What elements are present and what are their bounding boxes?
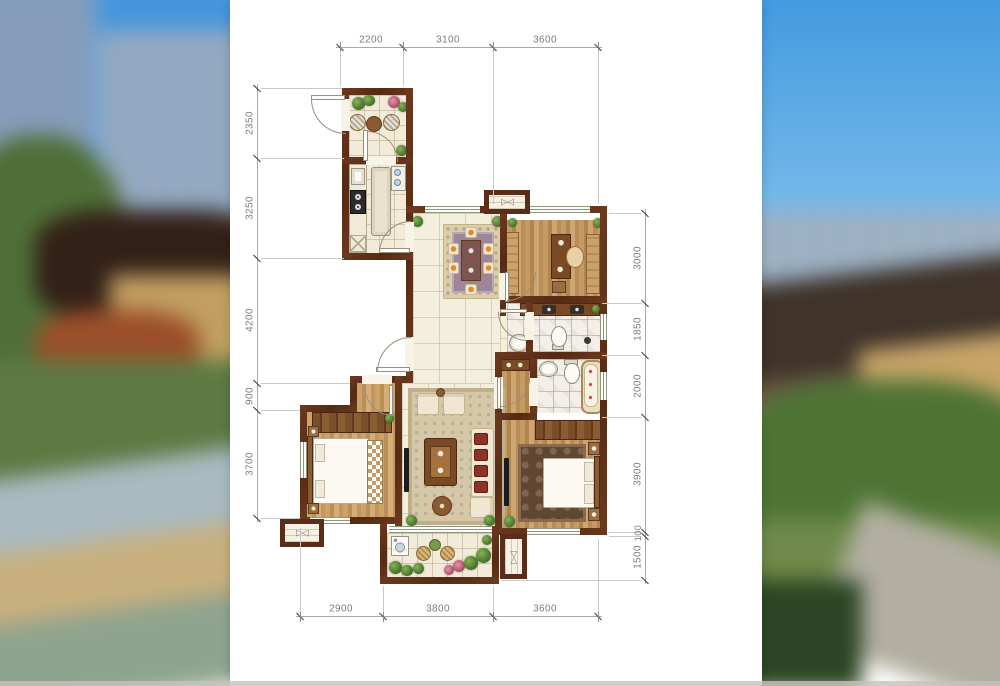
extension-line xyxy=(300,528,301,612)
master-tv xyxy=(504,458,509,506)
dim-label-left-1: 2350 xyxy=(245,111,256,135)
door-opening xyxy=(362,375,392,384)
nightstand xyxy=(308,503,319,514)
plant-pot xyxy=(508,218,517,227)
extension-line xyxy=(403,51,404,86)
toilet xyxy=(564,363,580,384)
dim-label-right-2: 1850 xyxy=(633,317,644,341)
window xyxy=(527,528,580,535)
sofa-cushion xyxy=(474,433,488,445)
extension-line xyxy=(261,88,342,89)
coffee-table-tray xyxy=(430,446,451,478)
nightstand xyxy=(588,508,600,521)
dim-label-bottom-3: 3600 xyxy=(533,604,557,615)
dining-chair xyxy=(448,243,459,255)
dining-chair xyxy=(465,227,477,238)
extension-line xyxy=(340,51,341,86)
kitchen-sink-basin xyxy=(394,169,401,176)
balcony-chair xyxy=(349,114,366,131)
shower-head xyxy=(584,337,591,344)
living-tv xyxy=(404,448,409,492)
dim-label-left-4: 900 xyxy=(245,387,256,405)
master-wardrobe xyxy=(535,420,602,440)
wall xyxy=(380,577,499,584)
window xyxy=(530,206,590,213)
balcony-table xyxy=(429,539,441,551)
bath1-vanity-sink xyxy=(542,305,556,314)
dim-label-left-3: 4200 xyxy=(245,308,256,332)
dining-chair xyxy=(465,284,477,295)
wall xyxy=(495,413,537,420)
dim-label-left-2: 3250 xyxy=(245,196,256,220)
ac-platform-north: ▷◁ xyxy=(484,190,530,214)
extension-line xyxy=(602,355,641,356)
extension-line xyxy=(609,213,641,214)
pillow xyxy=(584,484,594,504)
floor-plan-page: ▷◁ ▷◁ ▷◁ xyxy=(0,0,1000,686)
wall xyxy=(495,420,502,535)
wall xyxy=(395,376,402,526)
balcony-table xyxy=(366,116,382,132)
dim-label-bottom-2: 3800 xyxy=(426,604,450,615)
ac-platform-glyph: ▷◁ xyxy=(508,551,519,563)
extension-line xyxy=(261,158,344,159)
plant-pot xyxy=(482,535,492,545)
dim-label-top-1: 2200 xyxy=(359,35,383,46)
dimension-line-right xyxy=(645,209,646,584)
dining-chair xyxy=(483,262,494,274)
dim-label-top-2: 3100 xyxy=(436,35,460,46)
study-cabinet-right xyxy=(586,234,600,294)
extension-line xyxy=(493,586,494,612)
background-photo-right xyxy=(762,0,1000,686)
window xyxy=(600,372,607,400)
dim-label-right-6: 1500 xyxy=(633,545,644,569)
dining-chair xyxy=(483,243,494,255)
pillow xyxy=(584,462,594,482)
background-photo-left xyxy=(0,0,230,686)
dim-label-right-3: 2000 xyxy=(633,374,644,398)
plant-pot xyxy=(592,305,600,313)
wall xyxy=(495,352,607,359)
wall xyxy=(342,253,413,260)
photo-bottom-strip xyxy=(0,681,1000,686)
extension-line xyxy=(493,51,494,204)
plant-pot xyxy=(406,515,417,526)
dim-label-left-5: 3700 xyxy=(245,452,256,476)
bedroom2-wardrobe xyxy=(312,412,392,433)
extension-line xyxy=(261,410,300,411)
window xyxy=(300,442,307,478)
kitchen-flue-cabinet xyxy=(350,235,366,252)
study-chair xyxy=(566,246,584,268)
balcony-chair xyxy=(383,114,400,131)
dimension-line-left xyxy=(257,84,258,522)
round-table xyxy=(432,496,452,516)
extension-line xyxy=(598,51,599,204)
kitchen-cabinet xyxy=(351,168,365,185)
dimension-tick-bar xyxy=(383,611,384,622)
plant-pot xyxy=(504,516,515,527)
plant-pot xyxy=(389,561,402,574)
master-console xyxy=(499,359,530,371)
wall xyxy=(300,405,357,412)
wall xyxy=(380,524,387,584)
dim-label-bottom-1: 2900 xyxy=(329,604,353,615)
sofa-cushion xyxy=(474,465,488,477)
dimension-tick-bar xyxy=(493,611,494,622)
bedroom2-runner xyxy=(367,440,383,504)
nightstand xyxy=(308,426,319,437)
pillow xyxy=(315,444,325,462)
ac-platform-southeast: ▷◁ xyxy=(500,534,527,579)
plant-pot xyxy=(476,548,491,563)
side-table xyxy=(436,388,445,397)
background-photo-left-blur xyxy=(0,0,230,686)
stove-burner xyxy=(355,204,361,210)
dimension-line-top xyxy=(336,47,602,48)
armchair xyxy=(443,393,465,415)
bathtub-inner xyxy=(584,364,598,407)
dim-label-right-1: 3000 xyxy=(633,246,644,270)
plant-pot xyxy=(363,95,375,106)
dimension-line-bottom xyxy=(296,616,602,617)
extension-line xyxy=(383,586,384,612)
dim-label-right-5: 100 xyxy=(633,525,643,541)
window xyxy=(600,314,607,340)
extension-line xyxy=(602,303,641,304)
kitchen-sink-basin xyxy=(394,179,401,186)
plant-pot xyxy=(401,565,413,576)
extension-line xyxy=(261,258,344,259)
ac-platform-glyph: ▷◁ xyxy=(501,197,513,208)
extension-line xyxy=(598,539,599,612)
balcony-chair xyxy=(440,546,455,561)
shrub-dark-right xyxy=(762,580,862,686)
wall xyxy=(342,88,413,95)
dining-chair xyxy=(448,262,459,274)
plant-pot xyxy=(413,563,424,574)
toilet xyxy=(551,326,567,347)
window xyxy=(425,206,480,213)
pillow xyxy=(315,480,325,498)
balcony-chair xyxy=(416,546,431,561)
sliding-door xyxy=(389,526,492,533)
nightstand xyxy=(588,442,600,455)
dining-table xyxy=(461,240,481,281)
dim-label-top-3: 3600 xyxy=(533,35,557,46)
wall xyxy=(492,526,499,584)
dimension-tick-bar xyxy=(300,611,301,622)
ac-platform-glyph: ▷◁ xyxy=(296,528,308,539)
dimension-tick-bar xyxy=(598,611,599,622)
bath1-vanity-sink xyxy=(570,305,584,314)
extension-line xyxy=(261,383,350,384)
extension-line xyxy=(501,580,641,581)
dim-label-right-4: 3900 xyxy=(633,462,644,486)
ac-platform-southwest: ▷◁ xyxy=(280,519,324,547)
extension-line xyxy=(602,417,641,418)
bath2-sink xyxy=(539,361,558,377)
stove-burner xyxy=(355,194,361,200)
door-opening xyxy=(529,378,538,406)
background-photo-right-blur xyxy=(762,0,1000,686)
sofa-cushion xyxy=(474,449,488,461)
washing-machine xyxy=(391,536,409,556)
armchair xyxy=(417,393,439,415)
sofa-cushion xyxy=(474,481,488,493)
extension-line xyxy=(261,518,300,519)
study-stool xyxy=(552,281,566,293)
plant-pot xyxy=(484,515,495,526)
kitchen-island xyxy=(371,167,391,236)
